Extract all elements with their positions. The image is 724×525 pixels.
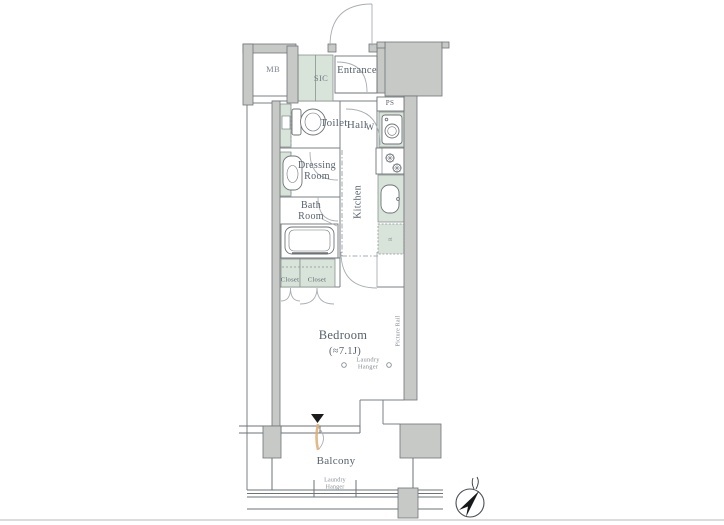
walls xyxy=(243,42,449,518)
floor-plan: MB SIC Entrance PS W Toilet Hall Dressin… xyxy=(0,0,724,525)
room-label-closet-right: Closet xyxy=(308,276,326,283)
laundry-hanger-balcony-label: Laundry Hanger xyxy=(320,477,350,490)
entrance-door-arc xyxy=(330,4,372,46)
bathtub-icon xyxy=(281,224,338,258)
room-label-dressing: Dressing Room xyxy=(289,160,345,182)
floor-plan-drawing xyxy=(0,0,724,525)
room-label-kitchen: Kitchen xyxy=(352,185,363,219)
room-label-closet-left: Closet xyxy=(281,276,299,283)
room-label-balcony: Balcony xyxy=(317,455,356,467)
room-label-ps: PS xyxy=(386,100,394,108)
north-arrow-icon xyxy=(456,477,484,517)
room-label-mb: MB xyxy=(266,65,280,75)
laundry-hanger-bedroom-label: Laundry Hanger xyxy=(352,357,384,372)
accent-stroke xyxy=(317,424,319,450)
room-label-sic: SIC xyxy=(314,74,328,84)
room-label-hall: Hall xyxy=(347,119,367,131)
room-label-entrance: Entrance xyxy=(337,65,377,77)
sink-icon xyxy=(381,185,399,213)
section-marker-triangle xyxy=(311,414,324,423)
picture-rail-label: Picture Rail xyxy=(396,316,403,347)
stove-icon xyxy=(376,148,404,174)
fridge-label: R xyxy=(388,237,394,241)
room-label-bedroom: Bedroom xyxy=(319,328,368,342)
page-bottom-rule xyxy=(0,519,724,521)
room-label-bath: Bath Room xyxy=(291,200,331,222)
railing-pillar xyxy=(398,488,418,518)
balcony-pillar-left xyxy=(263,426,281,458)
room-label-toilet: Toilet xyxy=(320,117,347,129)
washing-machine-icon xyxy=(382,115,402,144)
bedroom-door-arc xyxy=(341,252,377,288)
balcony-pillar-right xyxy=(400,424,441,458)
